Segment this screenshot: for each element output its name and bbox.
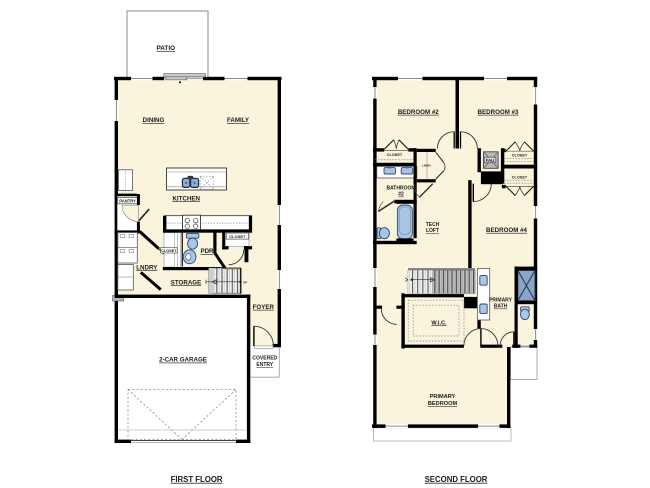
- svg-text:DINING: DINING: [143, 117, 165, 124]
- svg-text:#2: #2: [398, 192, 404, 198]
- svg-text:PRIMARY: PRIMARY: [430, 394, 456, 400]
- svg-text:BEDROOM #3: BEDROOM #3: [478, 109, 519, 116]
- svg-text:BATHROOM: BATHROOM: [386, 185, 415, 191]
- svg-text:BATH: BATH: [494, 304, 508, 310]
- svg-text:FOYER: FOYER: [253, 304, 275, 311]
- svg-text:LINEN: LINEN: [422, 163, 430, 167]
- svg-text:KITCHEN: KITCHEN: [172, 195, 200, 202]
- svg-text:FIRST FLOOR: FIRST FLOOR: [171, 475, 223, 484]
- svg-text:W.I.C.: W.I.C.: [431, 320, 447, 326]
- svg-text:CLOSET: CLOSET: [512, 175, 528, 179]
- svg-text:BEDROOM #2: BEDROOM #2: [398, 109, 439, 116]
- svg-text:BEDROOM #4: BEDROOM #4: [486, 227, 527, 234]
- svg-text:PRIMARY: PRIMARY: [489, 297, 513, 303]
- svg-text:CLOSET: CLOSET: [229, 234, 246, 239]
- svg-text:LOFT: LOFT: [426, 228, 439, 234]
- svg-text:ENTRY: ENTRY: [256, 362, 273, 368]
- svg-text:PDR: PDR: [200, 248, 214, 255]
- svg-text:CLOSET: CLOSET: [161, 249, 177, 253]
- svg-text:UP: UP: [243, 281, 247, 285]
- svg-text:PANTRY: PANTRY: [119, 199, 136, 204]
- svg-text:PATIO: PATIO: [157, 45, 176, 52]
- svg-text:CLOSET: CLOSET: [512, 154, 528, 158]
- svg-text:FAMILY: FAMILY: [227, 117, 250, 124]
- svg-text:SECOND FLOOR: SECOND FLOOR: [425, 475, 488, 484]
- svg-text:LNDRY: LNDRY: [136, 264, 158, 271]
- svg-text:FAU: FAU: [486, 158, 494, 163]
- svg-text:TECH: TECH: [426, 222, 440, 228]
- svg-text:2-CAR GARAGE: 2-CAR GARAGE: [159, 357, 207, 364]
- svg-text:COVERED: COVERED: [252, 356, 277, 362]
- svg-text:CLOSET: CLOSET: [387, 153, 403, 157]
- svg-text:BEDROOM: BEDROOM: [428, 401, 458, 407]
- svg-text:STORAGE: STORAGE: [171, 279, 201, 286]
